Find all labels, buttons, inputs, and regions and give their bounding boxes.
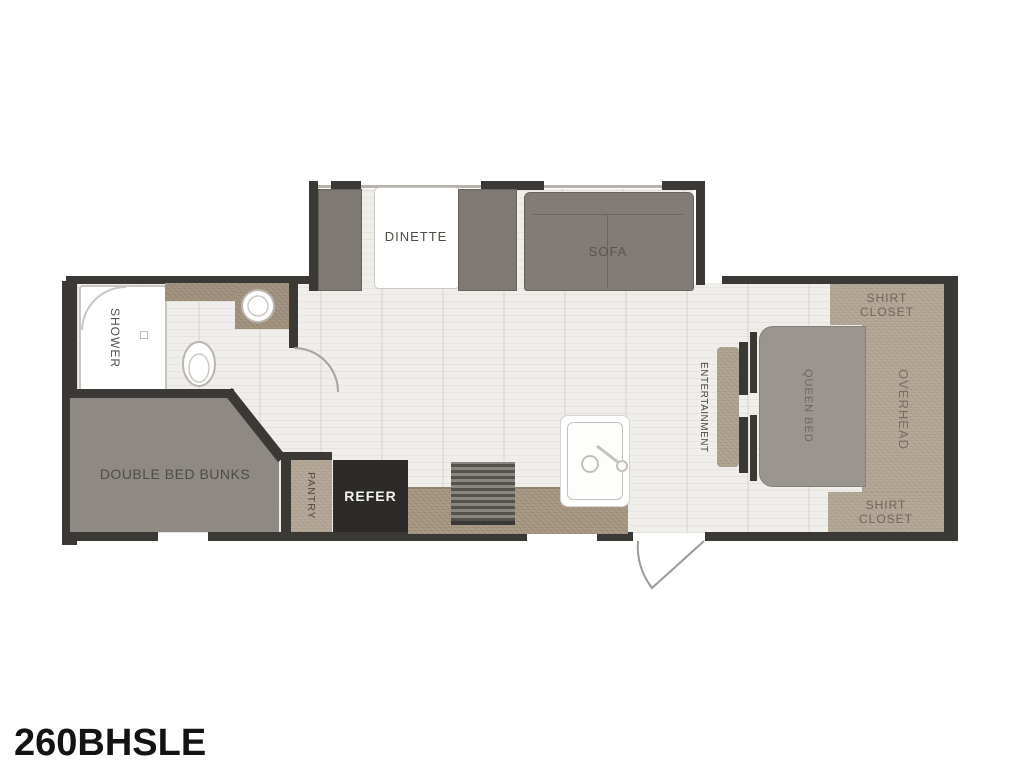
shirt-closet-top-label: SHIRT CLOSET xyxy=(830,284,944,325)
dinette-bench-right xyxy=(458,189,517,291)
overhead-label: OVERHEAD xyxy=(896,350,911,468)
slideout-wall-right xyxy=(696,181,705,285)
pantry-wall-top xyxy=(281,452,332,460)
sofa-label: SOFA xyxy=(558,242,658,260)
bathroom-wall xyxy=(289,281,298,348)
bunkroom-top-wall xyxy=(62,389,234,398)
kitchen-sink-basin xyxy=(567,422,623,500)
pantry-wall-left xyxy=(281,452,291,533)
bath-cabinet-strip xyxy=(165,283,235,301)
shirt-closet-bottom-label: SHIRT CLOSET xyxy=(828,492,944,532)
tv-bar-1a xyxy=(739,342,748,395)
shower-handle xyxy=(140,331,148,339)
bath-sink-counter xyxy=(235,283,290,329)
refer-label: REFER xyxy=(333,487,408,505)
dinette-label: DINETTE xyxy=(374,226,458,246)
dinette-bench-left xyxy=(318,189,362,291)
model-number: 260BHSLE xyxy=(14,722,206,765)
entertainment-cabinet xyxy=(717,347,739,467)
tv-bar-1b xyxy=(739,417,748,473)
pantry-label: PANTRY xyxy=(305,462,317,530)
wall-top-right xyxy=(722,276,958,284)
tv-bar-2b xyxy=(750,415,757,481)
shower-label: SHOWER xyxy=(108,295,122,381)
floorplan-260bhsle: DINETTE SOFA SHOWER DOUBLE BED BUNKS PAN… xyxy=(0,0,1024,768)
shower-stall xyxy=(79,285,167,395)
wall-right xyxy=(944,276,958,540)
wall-left xyxy=(62,281,77,545)
entertainment-label: ENTERTAINMENT xyxy=(698,346,709,468)
stove xyxy=(451,462,515,525)
wall-bottom-seg1 xyxy=(62,532,158,541)
wall-bottom-seg4 xyxy=(705,532,958,541)
tv-bar-2a xyxy=(750,332,757,393)
slideout-wall-left xyxy=(309,181,318,291)
bunks-label: DOUBLE BED BUNKS xyxy=(85,465,265,483)
queen-bed-label: QUEEN BED xyxy=(802,352,814,460)
sofa-backrest-seam xyxy=(533,214,683,215)
